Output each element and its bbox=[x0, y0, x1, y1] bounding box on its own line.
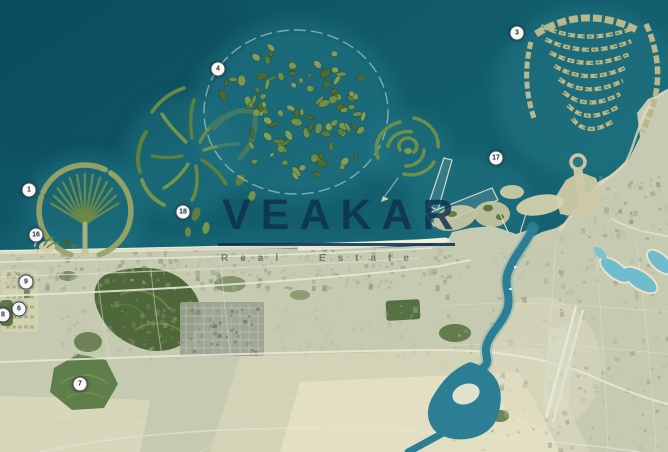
map-marker-4[interactable]: 4 bbox=[211, 62, 226, 77]
map-marker-1[interactable]: 1 bbox=[22, 183, 37, 198]
map-marker-6[interactable]: 6 bbox=[12, 302, 27, 317]
dubai-satellite-map: VEAKAR Real Estate 1346789161718 bbox=[0, 0, 668, 452]
map-marker-7[interactable]: 7 bbox=[73, 377, 88, 392]
satellite-map-canvas bbox=[0, 0, 668, 452]
map-marker-18[interactable]: 18 bbox=[176, 205, 191, 220]
map-marker-3[interactable]: 3 bbox=[510, 26, 525, 41]
map-marker-17[interactable]: 17 bbox=[489, 151, 504, 166]
map-marker-16[interactable]: 16 bbox=[29, 228, 44, 243]
map-marker-9[interactable]: 9 bbox=[19, 275, 34, 290]
urban-grid-district bbox=[180, 302, 264, 356]
